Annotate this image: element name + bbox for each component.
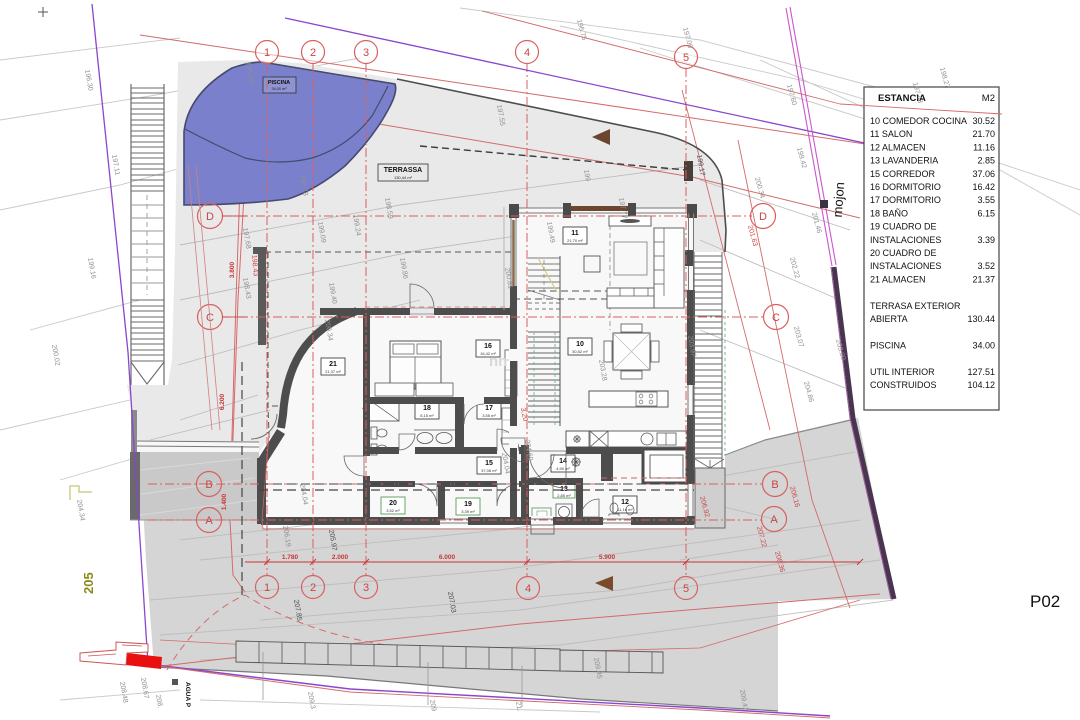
svg-text:205: 205: [81, 572, 96, 594]
svg-text:3,55 m²: 3,55 m²: [482, 413, 496, 418]
svg-text:18: 18: [423, 405, 431, 412]
svg-text:10: 10: [576, 341, 584, 348]
svg-text:15 CORREDOR: 15 CORREDOR: [870, 169, 936, 179]
svg-text:6.200: 6.200: [219, 393, 226, 410]
svg-text:5: 5: [683, 583, 689, 595]
svg-text:A: A: [770, 514, 778, 526]
svg-text:127.51: 127.51: [967, 367, 995, 377]
svg-text:D: D: [759, 211, 767, 223]
svg-text:1: 1: [264, 582, 270, 594]
svg-text:A: A: [205, 515, 213, 527]
svg-text:3.55: 3.55: [977, 195, 995, 205]
svg-text:15: 15: [485, 460, 493, 467]
svg-text:11,16 m²: 11,16 m²: [617, 507, 633, 512]
svg-text:19 CUADRO DE: 19 CUADRO DE: [870, 222, 937, 232]
svg-text:3.800: 3.800: [229, 261, 236, 278]
svg-text:ABIERTA: ABIERTA: [870, 314, 908, 324]
svg-text:21: 21: [329, 361, 337, 368]
svg-text:B: B: [771, 479, 778, 491]
svg-text:11 SALON: 11 SALON: [870, 129, 912, 139]
svg-text:37,06 m²: 37,06 m²: [481, 468, 497, 473]
svg-text:16 DORMITORIO: 16 DORMITORIO: [870, 182, 941, 192]
svg-text:UTIL INTERIOR: UTIL INTERIOR: [870, 367, 935, 377]
svg-text:12 ALMACEN: 12 ALMACEN: [870, 142, 926, 152]
svg-text:3: 3: [363, 47, 369, 59]
svg-text:3,39 m²: 3,39 m²: [461, 509, 475, 514]
svg-text:CONSTRUIDOS: CONSTRUIDOS: [870, 380, 937, 390]
svg-text:20 CUADRO DE: 20 CUADRO DE: [870, 248, 937, 258]
svg-text:5: 5: [683, 52, 689, 64]
svg-text:M2: M2: [982, 93, 995, 104]
svg-text:3,52 m²: 3,52 m²: [386, 508, 400, 513]
svg-text:2: 2: [310, 582, 316, 594]
svg-text:TERRASSA: TERRASSA: [384, 167, 423, 174]
svg-text:3.39: 3.39: [977, 235, 995, 245]
svg-text:21,37 m²: 21,37 m²: [325, 369, 341, 374]
svg-text:130.44: 130.44: [967, 314, 995, 324]
svg-text:12: 12: [621, 499, 629, 506]
svg-text:21.70: 21.70: [972, 129, 995, 139]
svg-text:mojon: mojon: [830, 181, 847, 217]
svg-text:104.12: 104.12: [967, 380, 995, 390]
svg-text:34.00: 34.00: [972, 340, 995, 350]
svg-text:10 COMEDOR COCINA: 10 COMEDOR COCINA: [870, 116, 967, 126]
svg-text:AGUA P: AGUA P: [184, 682, 191, 708]
svg-text:130,44 m²: 130,44 m²: [394, 175, 413, 180]
svg-text:21,70 m²: 21,70 m²: [567, 238, 583, 243]
svg-text:4: 4: [524, 47, 530, 59]
svg-text:2,85 m²: 2,85 m²: [557, 493, 571, 498]
svg-text:nn: nn: [489, 353, 507, 370]
svg-text:17 DORMITORIO: 17 DORMITORIO: [870, 195, 941, 205]
svg-text:16.42: 16.42: [972, 182, 995, 192]
svg-text:30,52 m²: 30,52 m²: [572, 349, 588, 354]
svg-text:21.37: 21.37: [972, 274, 995, 284]
svg-text:D: D: [206, 211, 214, 223]
svg-text:5.900: 5.900: [599, 554, 616, 561]
svg-text:20: 20: [389, 500, 397, 507]
svg-text:4,90 m²: 4,90 m²: [556, 466, 570, 471]
svg-text:B: B: [205, 479, 212, 491]
svg-text:13 LAVANDERIA: 13 LAVANDERIA: [870, 156, 938, 166]
svg-text:19: 19: [464, 501, 472, 508]
svg-text:3.52: 3.52: [977, 261, 995, 271]
svg-text:16: 16: [484, 343, 492, 350]
svg-text:PISCINA: PISCINA: [268, 80, 290, 86]
svg-text:2.85: 2.85: [977, 156, 995, 166]
svg-text:30.52: 30.52: [972, 116, 995, 126]
svg-text:3: 3: [363, 582, 369, 594]
svg-text:PISCINA: PISCINA: [870, 340, 906, 350]
svg-text:INSTALACIONES: INSTALACIONES: [870, 261, 941, 271]
svg-text:6,15 m²: 6,15 m²: [420, 413, 434, 418]
svg-text:2: 2: [310, 47, 316, 59]
svg-text:6.000: 6.000: [439, 554, 456, 561]
svg-text:11.16: 11.16: [973, 142, 995, 152]
svg-text:6.15: 6.15: [977, 208, 995, 218]
svg-text:18 BAÑO: 18 BAÑO: [870, 208, 908, 218]
svg-text:2.000: 2.000: [332, 554, 349, 561]
svg-text:1: 1: [264, 47, 270, 59]
svg-text:11: 11: [571, 230, 579, 237]
svg-text:21 ALMACEN: 21 ALMACEN: [870, 274, 926, 284]
svg-text:1.400: 1.400: [221, 493, 228, 510]
svg-text:TERRASA EXTERIOR: TERRASA EXTERIOR: [870, 301, 961, 311]
svg-text:34,00 m²: 34,00 m²: [272, 87, 288, 91]
svg-text:4: 4: [525, 583, 531, 595]
svg-text:C: C: [772, 312, 780, 324]
svg-text:17: 17: [485, 405, 493, 412]
svg-text:1.780: 1.780: [282, 554, 299, 561]
svg-text:37.06: 37.06: [972, 169, 995, 179]
svg-text:P02: P02: [1030, 592, 1060, 611]
svg-text:INSTALACIONES: INSTALACIONES: [870, 235, 941, 245]
